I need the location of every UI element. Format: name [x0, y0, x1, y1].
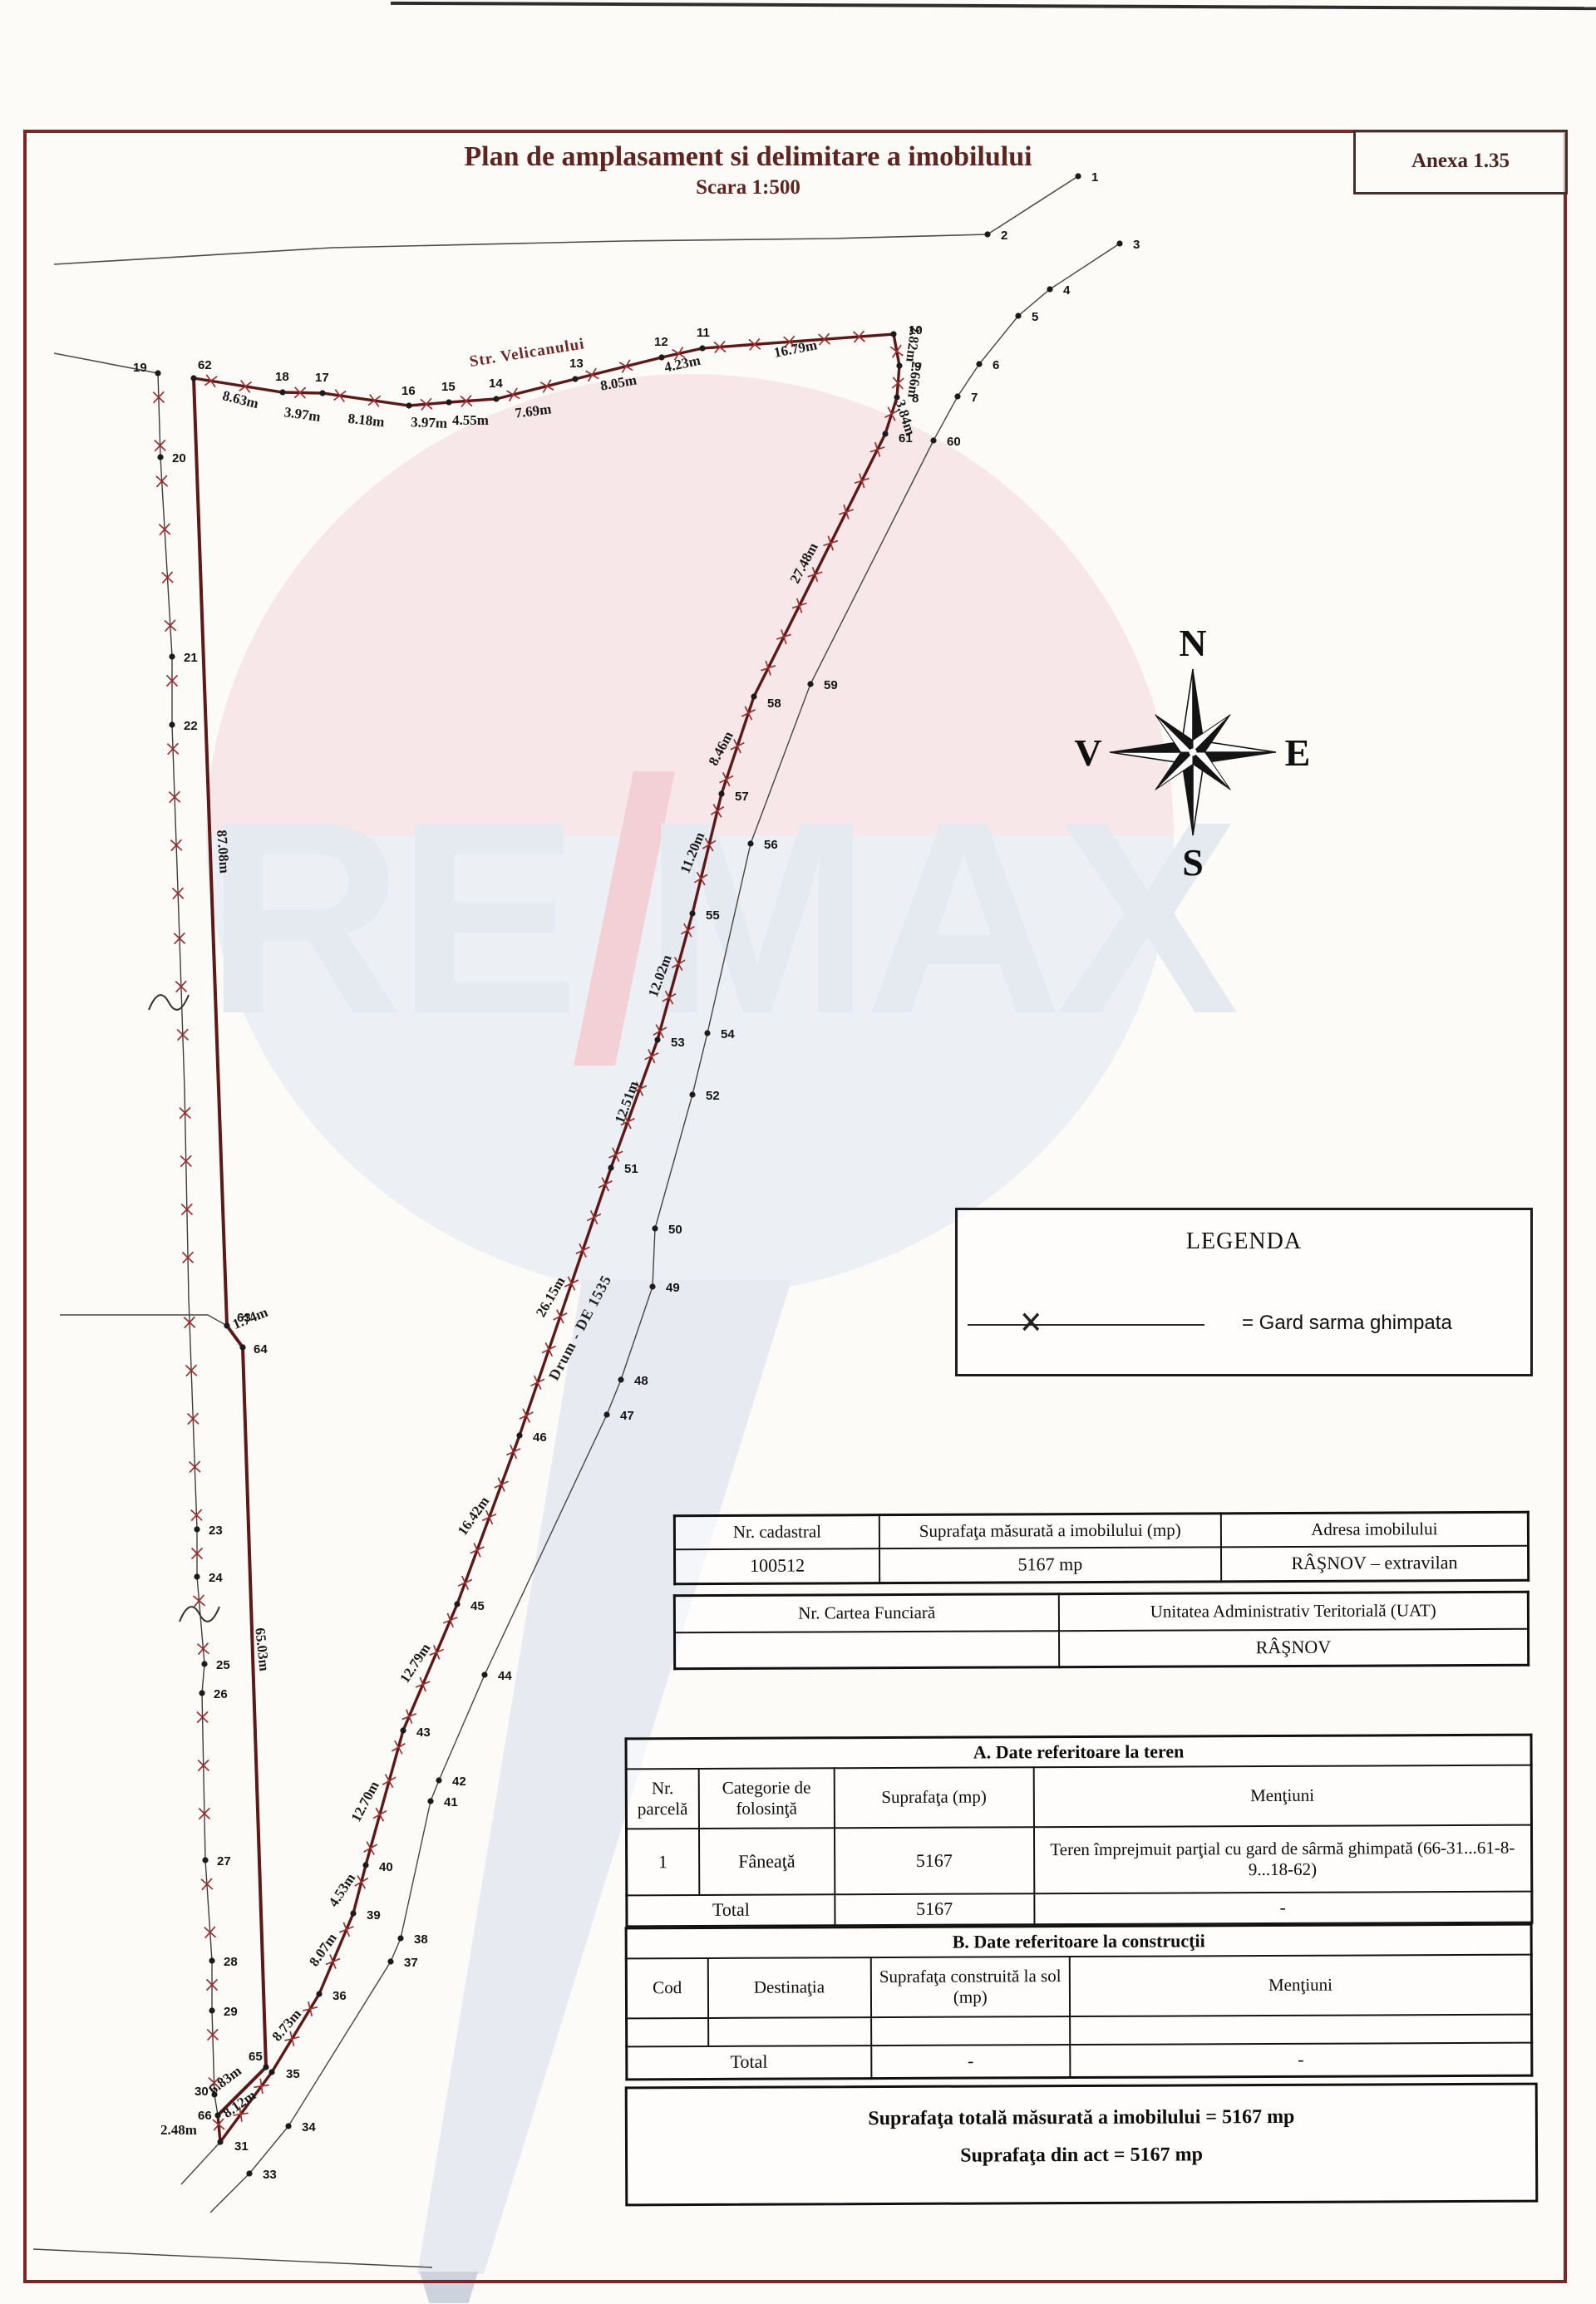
empty-cell	[1070, 2014, 1532, 2044]
cadastral-summary-table: Nr. cadastral Suprafaţa măsurată a imobi…	[673, 1511, 1529, 1585]
empty-cell	[708, 2017, 871, 2046]
legend-item-label: = Gard sarma ghimpata	[1242, 1312, 1452, 1335]
land-data-table: A. Date referitoare la teren Nr. parcelă…	[625, 1734, 1534, 1928]
col-header: Adresa imobilului	[1221, 1512, 1529, 1547]
parcel-area: 5167	[835, 1827, 1034, 1894]
land-book-table: Nr. Cartea Funciară Unitatea Administrat…	[673, 1591, 1529, 1670]
total-mentions: -	[1070, 2042, 1532, 2077]
col-header: Suprafaţa construită la sol (mp)	[870, 1957, 1070, 2017]
col-header: Destinaţia	[707, 1957, 870, 2018]
col-header: Menţiuni	[1070, 1954, 1532, 2016]
uat-name: RÂŞNOV	[1059, 1628, 1529, 1666]
total-built-area: -	[871, 2045, 1071, 2079]
barbed-wire-line-sample	[968, 1324, 1204, 1326]
measured-area: 5167 mp	[879, 1547, 1221, 1583]
col-header: Suprafaţa (mp)	[835, 1767, 1034, 1828]
total-area: 5167	[835, 1893, 1034, 1926]
address: RÂŞNOV – extravilan	[1221, 1545, 1529, 1582]
total-area-summary-box: Suprafaţa totală măsurată a imobilului =…	[625, 2083, 1539, 2207]
parcel-mentions: Teren împrejmuit parţial cu gard de sârm…	[1034, 1824, 1532, 1893]
table-a-title: A. Date referitoare la teren	[626, 1735, 1531, 1769]
compass-east-label: E	[1285, 731, 1311, 774]
plan-scale: Scara 1:500	[0, 176, 1496, 199]
compass-star	[1110, 669, 1276, 835]
col-header: Menţiuni	[1033, 1765, 1531, 1827]
total-mentions: -	[1034, 1891, 1532, 1925]
cadastral-number: 100512	[675, 1548, 880, 1584]
empty-cell	[871, 2016, 1071, 2046]
legend-box: LEGENDA ✕ = Gard sarma ghimpata	[955, 1208, 1533, 1376]
summary-deed-area: Suprafaţa din act = 5167 mp	[628, 2143, 1535, 2169]
parcel-number: 1	[626, 1828, 698, 1894]
compass-west-label: V	[1074, 731, 1101, 774]
usage-category: Fâneaţă	[699, 1828, 835, 1895]
col-header: Nr. cadastral	[674, 1515, 879, 1549]
summary-measured-area: Suprafaţa totală măsurată a imobilului =…	[628, 2105, 1535, 2132]
col-header: Nr. parcelă	[626, 1768, 698, 1828]
barbed-wire-x-icon: ✕	[1019, 1305, 1043, 1342]
compass-rose: N E S V	[1060, 615, 1326, 889]
col-header: Suprafaţa măsurată a imobilului (mp)	[879, 1514, 1221, 1548]
total-label: Total	[627, 2046, 871, 2080]
land-book-number	[675, 1631, 1059, 1669]
table-b-title: B. Date referitoare la construcţii	[626, 1924, 1531, 1958]
page-title: Plan de amplasament si delimitare a imob…	[0, 141, 1496, 173]
compass-south-label: S	[1182, 841, 1204, 884]
total-label: Total	[627, 1894, 835, 1927]
col-header: Nr. Cartea Funciară	[674, 1594, 1058, 1632]
compass-north-label: N	[1179, 622, 1206, 664]
empty-cell	[627, 2017, 708, 2046]
cadastral-plan-page: RE MAX 123456760595654525049484744424138…	[0, 0, 1596, 2304]
legend-title: LEGENDA	[958, 1228, 1530, 1255]
construction-data-table: B. Date referitoare la construcţii Cod D…	[625, 1923, 1534, 2081]
col-header: Categorie de folosinţă	[698, 1768, 835, 1829]
col-header: Unitatea Administrativ Teritorială (UAT)	[1058, 1592, 1528, 1630]
col-header: Cod	[626, 1957, 707, 2017]
